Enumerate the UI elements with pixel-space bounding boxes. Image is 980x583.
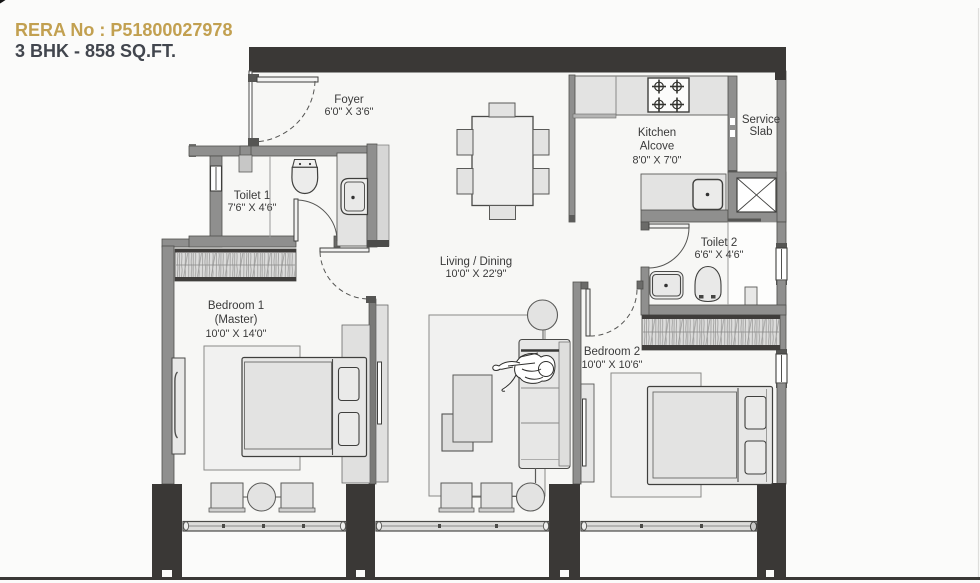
- svg-text:3 BHK - 858 SQ.FT.: 3 BHK - 858 SQ.FT.: [15, 41, 176, 61]
- svg-text:10'0" X 10'6": 10'0" X 10'6": [581, 359, 642, 371]
- svg-text:10'0" X 22'9": 10'0" X 22'9": [445, 268, 506, 280]
- svg-text:Toilet 2: Toilet 2: [701, 237, 737, 249]
- svg-text:(Master): (Master): [215, 314, 258, 326]
- svg-text:Living / Dining: Living / Dining: [440, 256, 512, 268]
- svg-text:RERA No : P51800027978: RERA No : P51800027978: [15, 20, 232, 40]
- svg-text:Kitchen: Kitchen: [638, 127, 676, 139]
- svg-text:Bedroom 1: Bedroom 1: [208, 300, 264, 312]
- svg-text:Slab: Slab: [749, 126, 772, 138]
- svg-text:7'6" X 4'6": 7'6" X 4'6": [227, 202, 276, 214]
- svg-text:Toilet 1: Toilet 1: [234, 190, 270, 202]
- svg-text:6'0" X 3'6": 6'0" X 3'6": [324, 106, 373, 118]
- svg-text:Alcove: Alcove: [640, 141, 675, 153]
- svg-text:Service: Service: [742, 114, 780, 126]
- svg-text:Bedroom 2: Bedroom 2: [584, 346, 640, 358]
- svg-text:8'0" X 7'0": 8'0" X 7'0": [632, 155, 681, 167]
- svg-text:10'0" X 14'0": 10'0" X 14'0": [205, 328, 266, 340]
- svg-text:Foyer: Foyer: [334, 94, 364, 106]
- svg-text:6'6" X 4'6": 6'6" X 4'6": [694, 249, 743, 261]
